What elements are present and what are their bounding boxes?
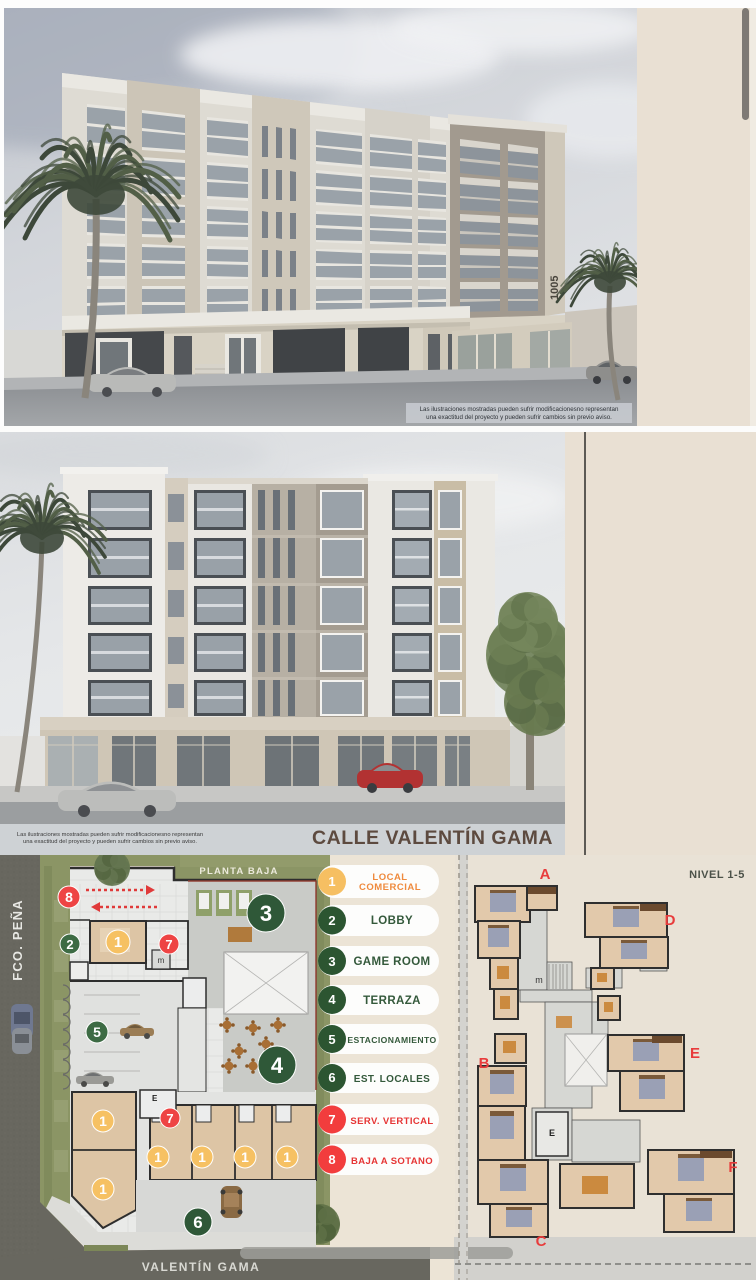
svg-text:Las ilustraciones mostradas pu: Las ilustraciones mostradas pueden sufri… (17, 832, 203, 838)
svg-text:6: 6 (193, 1213, 202, 1232)
svg-text:CALLE VALENTÍN GAMA: CALLE VALENTÍN GAMA (312, 826, 553, 849)
svg-text:1: 1 (283, 1149, 291, 1165)
svg-text:4: 4 (328, 992, 336, 1007)
svg-text:ESTACIONAMIENTO: ESTACIONAMIENTO (347, 1035, 436, 1045)
svg-text:8: 8 (328, 1152, 335, 1167)
svg-text:una exactitud del proyecto y p: una exactitud del proyecto y pueden sufr… (23, 839, 197, 845)
svg-text:FCO. PEÑA: FCO. PEÑA (10, 899, 25, 981)
svg-text:COMERCIAL: COMERCIAL (359, 882, 421, 893)
svg-text:EST. LOCALES: EST. LOCALES (354, 1074, 430, 1085)
svg-text:8: 8 (65, 889, 73, 905)
svg-text:GAME ROOM: GAME ROOM (353, 956, 430, 968)
svg-text:PLANTA BAJA: PLANTA BAJA (199, 866, 278, 877)
svg-text:1: 1 (328, 874, 335, 889)
svg-text:1: 1 (198, 1149, 206, 1165)
svg-text:1: 1 (241, 1149, 249, 1165)
svg-text:7: 7 (165, 937, 172, 952)
svg-text:E: E (690, 1045, 700, 1062)
svg-text:5: 5 (328, 1032, 335, 1047)
svg-text:F: F (728, 1159, 737, 1176)
svg-text:E: E (152, 1094, 158, 1103)
svg-text:2: 2 (66, 937, 73, 952)
svg-text:7: 7 (166, 1111, 173, 1126)
svg-text:B: B (479, 1055, 490, 1072)
svg-text:1: 1 (99, 1113, 107, 1129)
svg-text:3: 3 (328, 954, 335, 969)
svg-text:1: 1 (154, 1149, 162, 1165)
svg-text:m: m (158, 956, 165, 965)
svg-text:6: 6 (328, 1070, 335, 1085)
svg-text:SERV. VERTICAL: SERV. VERTICAL (350, 1116, 433, 1127)
svg-text:5: 5 (93, 1024, 101, 1040)
svg-text:TERRAZA: TERRAZA (363, 995, 421, 1007)
svg-text:1: 1 (99, 1181, 107, 1197)
svg-text:1: 1 (114, 934, 122, 951)
svg-text:Las ilustraciones mostradas pu: Las ilustraciones mostradas pueden sufri… (420, 406, 619, 413)
svg-text:3: 3 (260, 901, 272, 926)
svg-text:LOBBY: LOBBY (371, 915, 413, 927)
svg-text:7: 7 (328, 1112, 335, 1127)
svg-text:2: 2 (328, 913, 335, 928)
svg-text:BAJA A SOTANO: BAJA A SOTANO (351, 1156, 433, 1167)
svg-text:m: m (535, 975, 543, 985)
svg-text:4: 4 (271, 1053, 284, 1078)
svg-text:VALENTÍN GAMA: VALENTÍN GAMA (142, 1259, 261, 1274)
svg-text:D: D (665, 912, 676, 929)
svg-text:E: E (549, 1128, 555, 1138)
svg-text:una exactitud del proyecto y p: una exactitud del proyecto y pueden sufr… (426, 414, 612, 421)
svg-text:A: A (540, 866, 551, 883)
svg-text:1005: 1005 (549, 276, 561, 300)
svg-text:NIVEL 1-5: NIVEL 1-5 (689, 869, 745, 881)
svg-text:C: C (536, 1233, 547, 1250)
